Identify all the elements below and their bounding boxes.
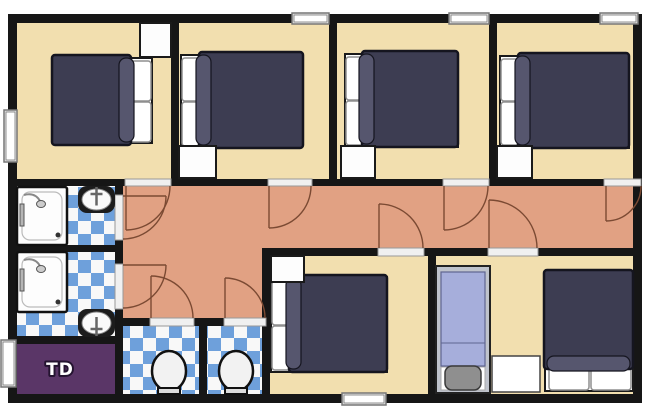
window-bedroom-3 bbox=[449, 13, 489, 24]
wall-12 bbox=[199, 318, 207, 394]
bed-bedroom-6-duvet bbox=[544, 270, 633, 369]
bed-bedroom-4 bbox=[500, 53, 629, 148]
window-bedroom-1-pane bbox=[6, 112, 15, 160]
nightstand-bedroom-4-top bbox=[497, 146, 532, 178]
doorway-bedroom-5 bbox=[378, 248, 424, 256]
single-bed-bedroom-6-pillow bbox=[445, 366, 481, 390]
single-bed-bedroom-6 bbox=[436, 266, 490, 393]
bed-bedroom-2-duvet-fold bbox=[196, 55, 211, 145]
doorway-wc-1 bbox=[150, 318, 194, 326]
toilet-wc-2-base bbox=[225, 388, 247, 394]
bed-bedroom-3 bbox=[345, 51, 458, 147]
doorway-bedroom-3 bbox=[443, 179, 489, 186]
table-bedroom-6 bbox=[492, 356, 540, 392]
nightstand-bedroom-4 bbox=[497, 146, 532, 178]
bed-bedroom-4-duvet-fold bbox=[515, 56, 530, 145]
floor-plan: TD bbox=[0, 0, 650, 420]
shower-bathroom-1 bbox=[17, 187, 67, 245]
window-bedroom-4 bbox=[600, 13, 638, 24]
bed-bedroom-6-duvet-fold bbox=[547, 356, 630, 371]
bed-bedroom-5 bbox=[271, 275, 387, 372]
nightstand-bedroom-5-top bbox=[271, 256, 304, 282]
utility-room-td-label: TD bbox=[46, 360, 74, 380]
window-bedroom-3-pane bbox=[451, 15, 487, 22]
sink-bathroom-2 bbox=[78, 309, 115, 337]
wall-10 bbox=[8, 336, 115, 344]
toilet-wc-1-base bbox=[158, 388, 180, 394]
shower-bathroom-2 bbox=[17, 252, 67, 312]
wall-13 bbox=[262, 248, 642, 256]
nightstand-bedroom-2-top bbox=[179, 146, 216, 178]
wall-5 bbox=[329, 14, 337, 186]
doorway-bedroom-4 bbox=[604, 179, 641, 186]
bed-bedroom-2 bbox=[181, 52, 303, 148]
toilet-wc-1 bbox=[152, 351, 186, 394]
bed-bedroom-5-duvet-fold bbox=[286, 278, 301, 369]
toilet-wc-1-bowl bbox=[152, 351, 186, 391]
single-bed-bedroom-6-blanket bbox=[441, 272, 485, 366]
floor-plan-drawing: TD bbox=[0, 0, 650, 420]
doorway-bedroom-6 bbox=[488, 248, 538, 256]
table-bedroom-6-top bbox=[492, 356, 540, 392]
shower-bathroom-2-drain-icon bbox=[56, 300, 61, 305]
wall-6 bbox=[489, 14, 497, 186]
corridor-branch bbox=[123, 186, 262, 318]
bed-bedroom-4-duvet bbox=[518, 53, 629, 148]
nightstand-bedroom-2 bbox=[179, 146, 216, 178]
bed-bedroom-2-duvet bbox=[199, 52, 303, 148]
bed-bedroom-3-duvet bbox=[362, 51, 458, 147]
window-bedroom-2 bbox=[292, 13, 329, 24]
doorway-bathroom-2 bbox=[115, 264, 123, 309]
bed-bedroom-5-duvet bbox=[289, 275, 387, 372]
bed-bedroom-6 bbox=[544, 270, 633, 391]
nightstand-bedroom-3 bbox=[341, 146, 375, 178]
doorway-bedroom-1 bbox=[125, 179, 171, 186]
wall-7 bbox=[8, 179, 642, 186]
nightstand-bedroom-1-top bbox=[140, 23, 171, 57]
window-bedroom-5-pane bbox=[344, 395, 384, 403]
sink-bathroom-1 bbox=[78, 186, 115, 213]
bed-bedroom-1-duvet-fold bbox=[119, 58, 134, 142]
doorway-bedroom-2 bbox=[268, 179, 312, 186]
doorway-wc-2 bbox=[224, 318, 266, 326]
bed-bedroom-1 bbox=[52, 55, 152, 145]
wall-4 bbox=[171, 14, 179, 186]
window-utility-td bbox=[1, 340, 16, 387]
nightstand-bedroom-1 bbox=[140, 23, 171, 57]
bed-bedroom-3-duvet-fold bbox=[359, 54, 374, 144]
wall-15 bbox=[428, 248, 436, 394]
doorway-bathroom-1 bbox=[115, 195, 123, 240]
wall-3 bbox=[633, 14, 642, 403]
wall-1 bbox=[8, 394, 642, 403]
toilet-wc-2-bowl bbox=[219, 351, 253, 391]
shower-bathroom-1-drain-icon bbox=[56, 233, 61, 238]
window-bedroom-2-pane bbox=[294, 15, 327, 22]
nightstand-bedroom-3-top bbox=[341, 146, 375, 178]
window-bedroom-1 bbox=[4, 110, 17, 162]
window-bedroom-5 bbox=[342, 393, 386, 405]
toilet-wc-2 bbox=[219, 351, 253, 394]
window-bedroom-4-pane bbox=[602, 15, 636, 22]
window-utility-td-pane bbox=[3, 342, 14, 385]
nightstand-bedroom-5 bbox=[271, 256, 304, 282]
